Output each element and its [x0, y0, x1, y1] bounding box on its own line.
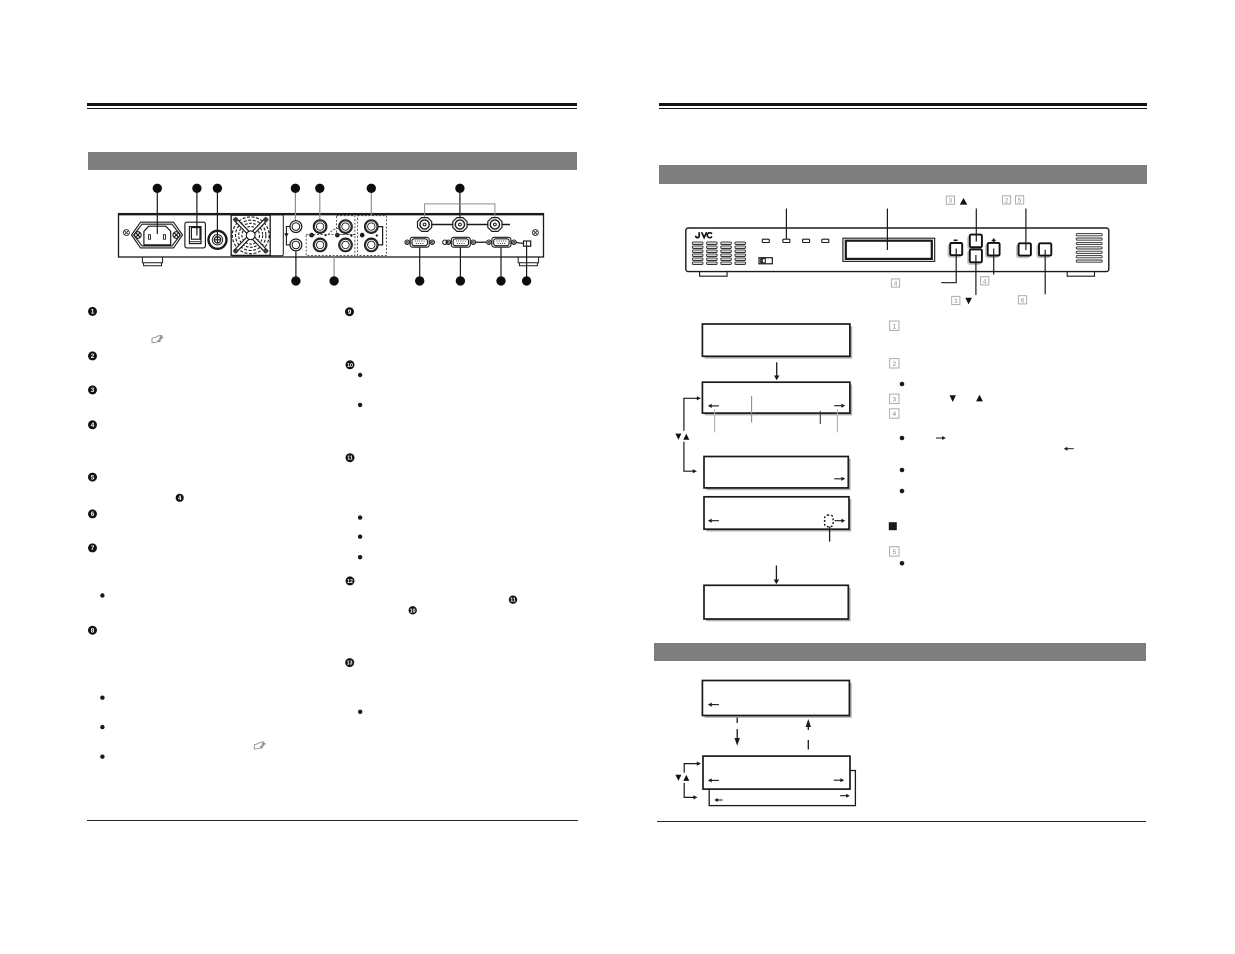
svg-text:3: 3: [91, 387, 95, 394]
svg-text:4: 4: [91, 422, 95, 429]
svg-text:2: 2: [892, 361, 896, 368]
svg-text:3: 3: [892, 397, 896, 404]
svg-text:8: 8: [91, 628, 95, 635]
svg-text:5: 5: [892, 549, 896, 556]
svg-text:5: 5: [91, 474, 95, 481]
svg-text:2: 2: [91, 353, 95, 360]
svg-text:9: 9: [348, 309, 352, 316]
svg-text:1: 1: [892, 323, 896, 330]
svg-text:7: 7: [91, 545, 95, 552]
svg-text:4: 4: [178, 495, 182, 502]
svg-text:11: 11: [510, 598, 516, 604]
svg-text:10: 10: [410, 608, 416, 614]
svg-text:13: 13: [347, 661, 353, 667]
svg-text:1: 1: [91, 309, 95, 316]
svg-text:6: 6: [91, 511, 95, 518]
svg-text:10: 10: [347, 363, 353, 369]
svg-text:11: 11: [347, 456, 353, 462]
svg-text:12: 12: [347, 579, 353, 585]
svg-text:4: 4: [892, 411, 896, 418]
